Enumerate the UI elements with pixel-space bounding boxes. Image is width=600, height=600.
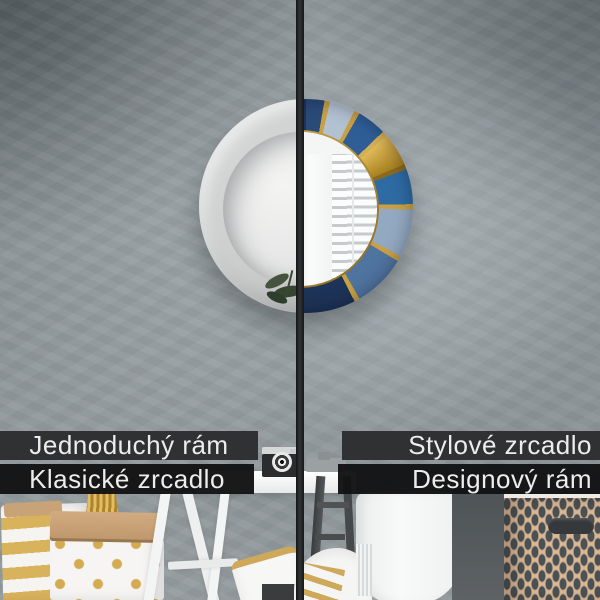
comparison-divider-line (296, 0, 304, 600)
label-bar-left-top: Jednoduchý rám (0, 431, 258, 460)
shelf-object-detail (318, 452, 330, 460)
label-left-bottom: Klasické zrcadlo (29, 464, 225, 495)
window-shutter-louvers (332, 132, 377, 286)
dark-object (262, 584, 298, 600)
storage-box-handle (548, 518, 594, 534)
pillow-gold-stripes (297, 563, 345, 600)
shadowed-wall-panel (452, 488, 510, 600)
paper-bag-kraft-rim (50, 511, 165, 543)
label-bar-left-bottom: Klasické zrcadlo (0, 464, 254, 494)
label-right-top: Stylové zrcadlo (408, 430, 592, 461)
camera-lens (272, 452, 292, 472)
label-bar-right-bottom: Designový rám (338, 464, 600, 494)
ladder-chair-rung (317, 502, 349, 508)
window-mullion (352, 132, 354, 286)
label-bar-right-top: Stylové zrcadlo (342, 431, 600, 460)
label-left-top: Jednoduchý rám (29, 430, 228, 461)
throw-fringe (356, 544, 372, 596)
storage-box-diamond-pattern (504, 494, 600, 600)
label-right-bottom: Designový rám (412, 464, 592, 495)
ladder-chair-rung (315, 534, 345, 540)
retro-camera (262, 447, 300, 477)
product-comparison-image: Jednoduchý rám Klasické zrcadlo Stylové … (0, 0, 600, 600)
